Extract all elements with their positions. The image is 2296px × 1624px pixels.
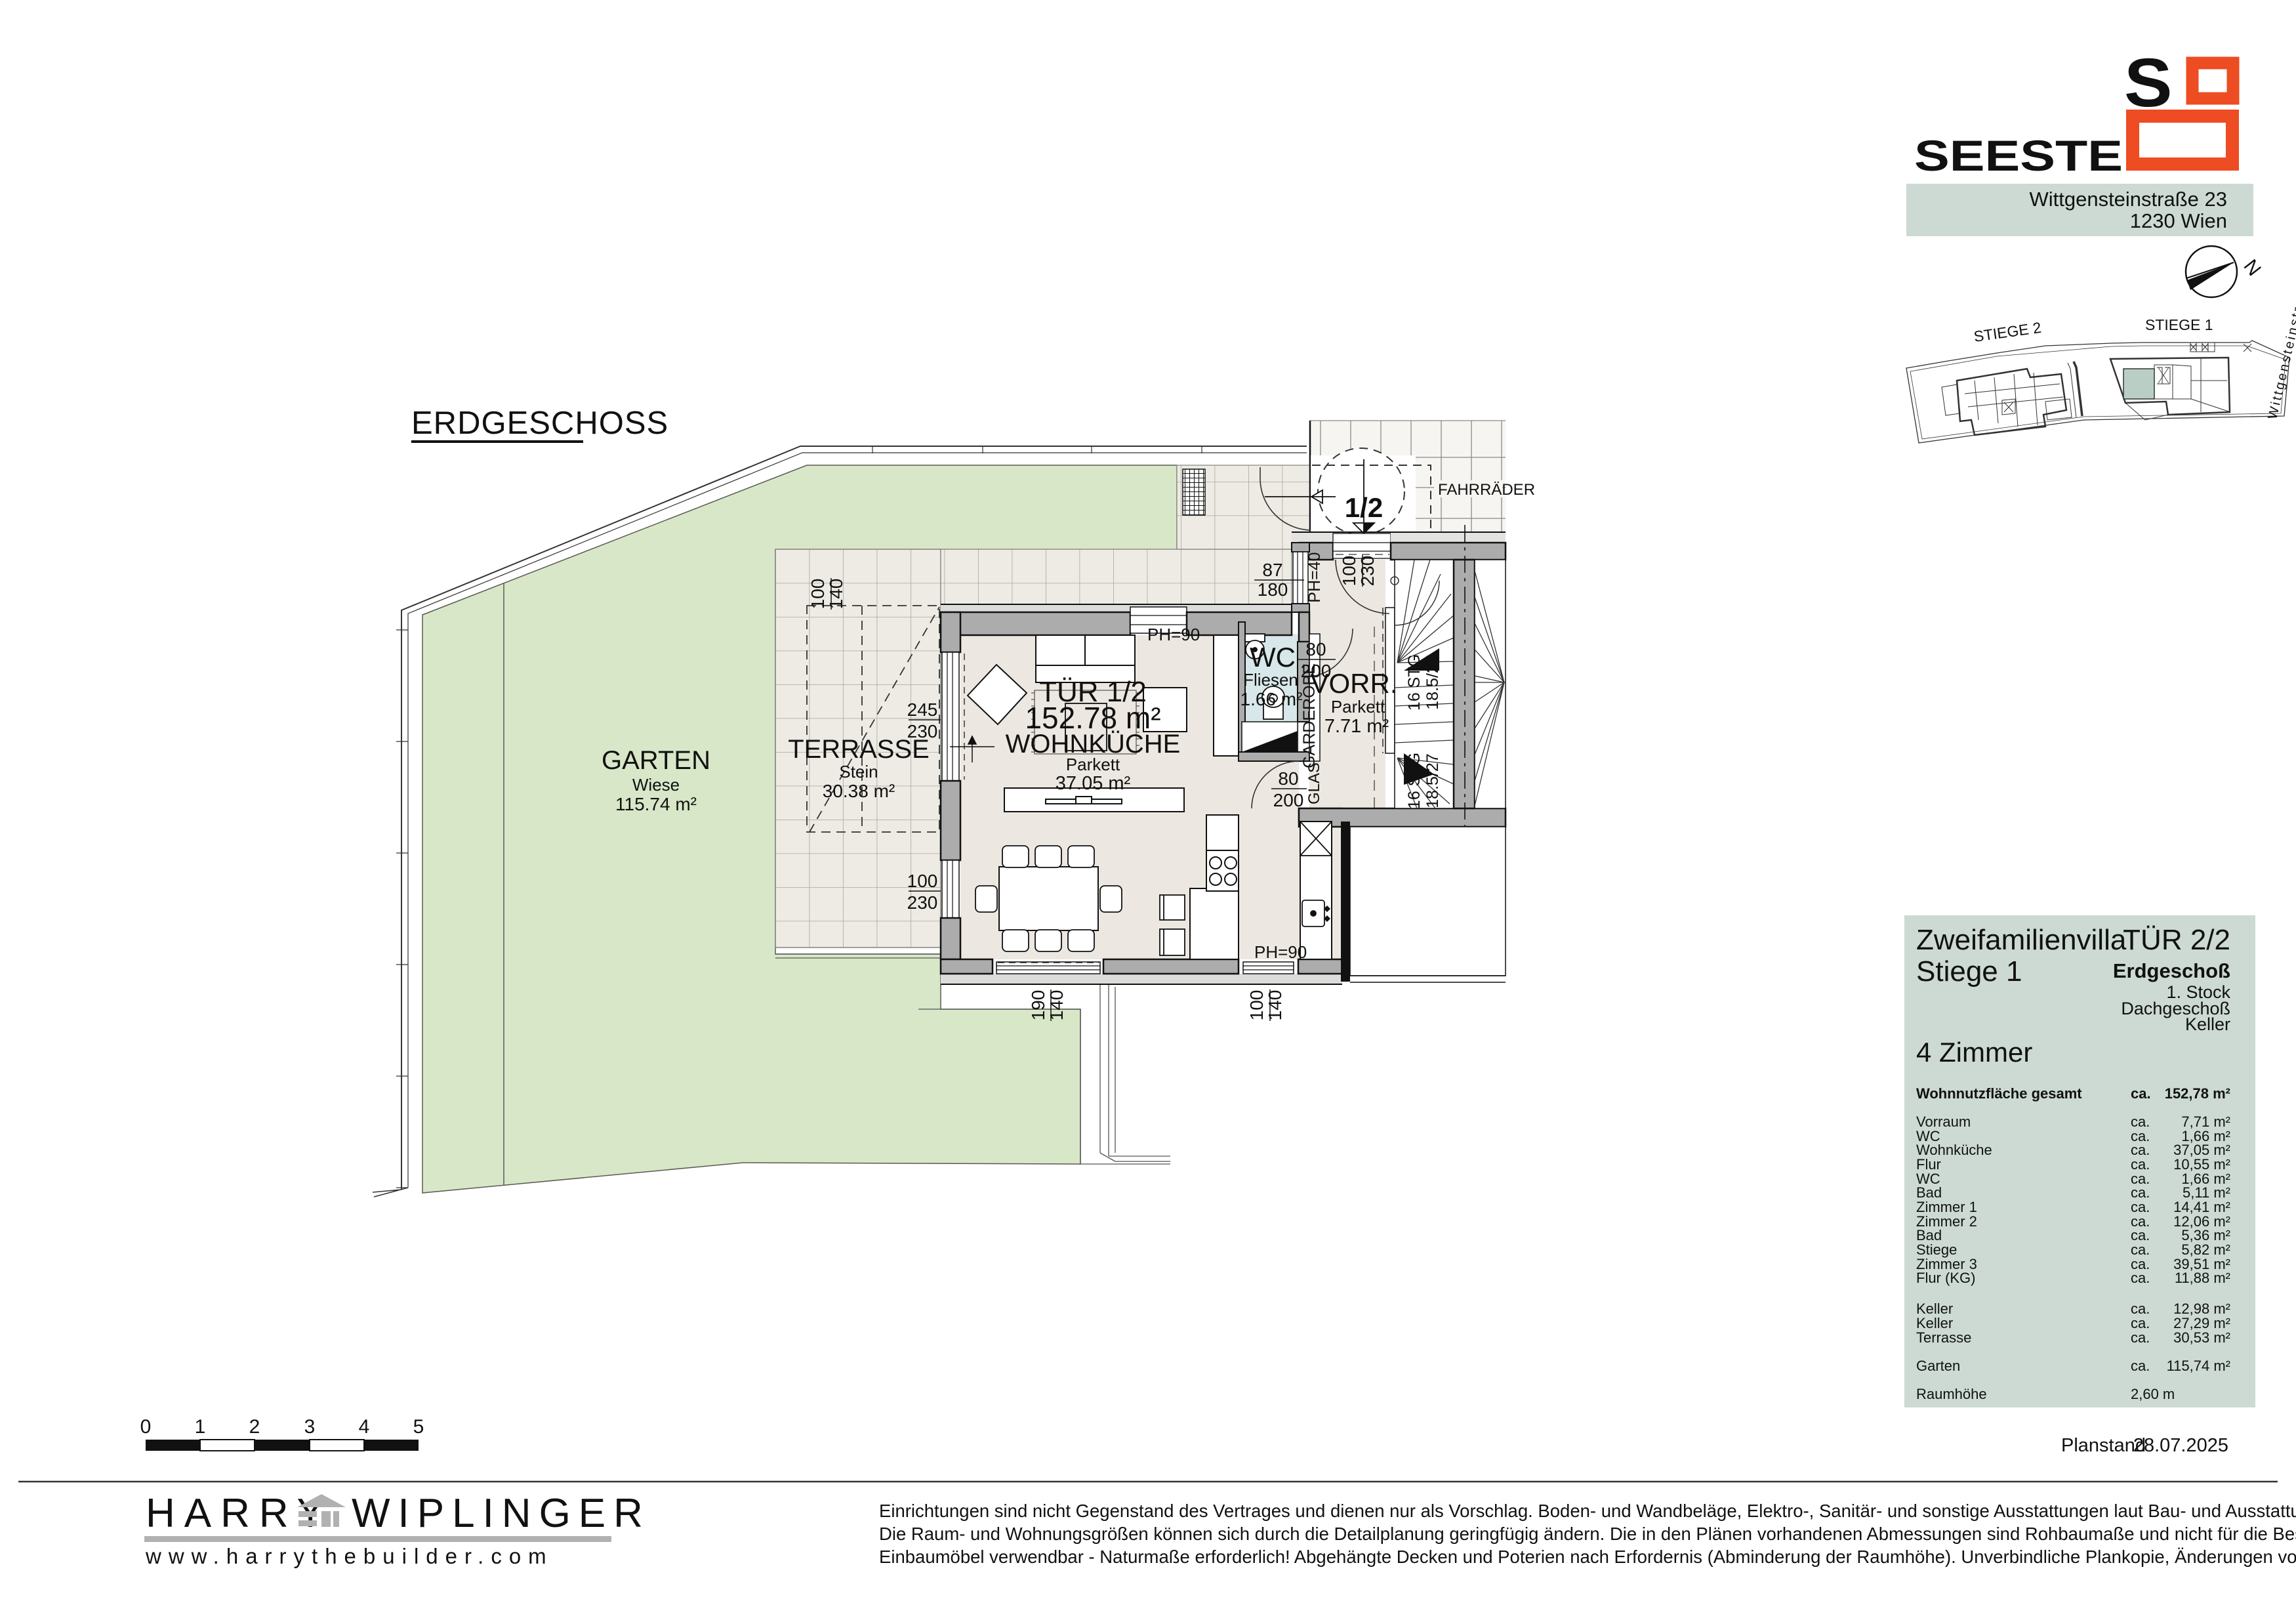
svg-text:PH=90: PH=90 xyxy=(1254,942,1307,962)
svg-text:PH=90: PH=90 xyxy=(1147,625,1200,644)
svg-text:Raumhöhe: Raumhöhe xyxy=(1916,1386,1987,1402)
svg-text:140: 140 xyxy=(1046,990,1067,1021)
svg-text:Fliesen: Fliesen xyxy=(1243,670,1298,690)
svg-text:Zweifamilienvilla: Zweifamilienvilla xyxy=(1916,924,2127,956)
svg-text:16 STG: 16 STG xyxy=(1405,753,1424,809)
svg-text:Wiese: Wiese xyxy=(632,775,680,795)
svg-text:PH=40: PH=40 xyxy=(1305,552,1324,602)
svg-text:FAHRRÄDER: FAHRRÄDER xyxy=(1438,481,1535,499)
svg-text:80: 80 xyxy=(1305,639,1326,659)
svg-text:Flur (KG): Flur (KG) xyxy=(1916,1270,1975,1286)
svg-text:0: 0 xyxy=(140,1416,152,1438)
svg-text:200: 200 xyxy=(1301,661,1332,681)
svg-text:3: 3 xyxy=(304,1416,316,1438)
svg-text:152,78 m²: 152,78 m² xyxy=(2165,1085,2230,1102)
svg-text:115.74 m²: 115.74 m² xyxy=(615,794,697,814)
svg-text:30,53 m²: 30,53 m² xyxy=(2173,1329,2230,1346)
svg-text:200: 200 xyxy=(1273,790,1304,810)
svg-text:115,74 m²: 115,74 m² xyxy=(2167,1358,2230,1374)
svg-text:230: 230 xyxy=(907,721,938,741)
svg-text:100: 100 xyxy=(1246,990,1267,1021)
svg-text:www.harrythebuilder.com: www.harrythebuilder.com xyxy=(145,1544,554,1568)
svg-text:100: 100 xyxy=(808,579,828,610)
svg-text:S: S xyxy=(2124,44,2173,121)
svg-text:Wohnnutzfläche gesamt: Wohnnutzfläche gesamt xyxy=(1916,1085,2082,1102)
svg-text:230: 230 xyxy=(1357,556,1378,587)
svg-text:140: 140 xyxy=(826,579,846,610)
svg-text:190: 190 xyxy=(1028,990,1048,1021)
svg-text:ERDGESCHOSS: ERDGESCHOSS xyxy=(411,406,668,441)
svg-text:30.38 m²: 30.38 m² xyxy=(823,781,895,801)
svg-text:18.5/27: 18.5/27 xyxy=(1424,655,1442,709)
svg-text:7.71 m²: 7.71 m² xyxy=(1324,716,1389,737)
svg-text:ca.: ca. xyxy=(2131,1329,2150,1346)
svg-text:1.66 m²: 1.66 m² xyxy=(1240,689,1303,709)
svg-text:STIEGE 1: STIEGE 1 xyxy=(2145,316,2213,333)
svg-text:1230 Wien: 1230 Wien xyxy=(2130,209,2227,232)
svg-text:Parkett: Parkett xyxy=(1331,697,1385,717)
svg-text:80: 80 xyxy=(1278,768,1298,789)
svg-text:Stein: Stein xyxy=(839,762,878,781)
svg-text:GARTEN: GARTEN xyxy=(602,746,710,775)
svg-text:18.5/27: 18.5/27 xyxy=(1424,753,1442,808)
svg-text:Einrichtungen sind nicht Gegen: Einrichtungen sind nicht Gegenstand des … xyxy=(879,1501,2296,1521)
svg-text:Terrasse: Terrasse xyxy=(1916,1329,1971,1346)
svg-text:100: 100 xyxy=(1339,556,1359,587)
svg-text:WIPLINGER: WIPLINGER xyxy=(352,1491,651,1536)
svg-text:Wittgensteinstraße 23: Wittgensteinstraße 23 xyxy=(2029,188,2227,211)
svg-text:Keller: Keller xyxy=(2185,1014,2230,1034)
svg-text:87: 87 xyxy=(1262,560,1282,580)
svg-text:4: 4 xyxy=(359,1416,370,1438)
svg-text:11,88 m²: 11,88 m² xyxy=(2175,1270,2230,1286)
svg-text:4 Zimmer: 4 Zimmer xyxy=(1916,1037,2032,1068)
svg-text:1: 1 xyxy=(195,1416,206,1438)
svg-text:TÜR 2/2: TÜR 2/2 xyxy=(2123,924,2230,956)
svg-text:ca.: ca. xyxy=(2131,1085,2151,1102)
svg-text:ca.: ca. xyxy=(2131,1270,2150,1286)
svg-text:ca.: ca. xyxy=(2131,1358,2150,1374)
svg-text:Parkett: Parkett xyxy=(1066,755,1120,774)
svg-text:28.07.2025: 28.07.2025 xyxy=(2133,1435,2228,1456)
svg-text:230: 230 xyxy=(907,892,938,913)
svg-text:WC: WC xyxy=(1250,642,1296,673)
svg-text:GLAS: GLAS xyxy=(1305,762,1323,804)
svg-text:37.05 m²: 37.05 m² xyxy=(1056,773,1131,794)
svg-text:2: 2 xyxy=(249,1416,260,1438)
svg-text:Erdgeschoß: Erdgeschoß xyxy=(2113,959,2230,982)
svg-text:2,60 m: 2,60 m xyxy=(2131,1386,2175,1402)
svg-text:245: 245 xyxy=(907,699,938,720)
svg-text:16 STG: 16 STG xyxy=(1405,654,1424,711)
svg-text:Einbaumöbel verwendbar - Natur: Einbaumöbel verwendbar - Naturmaße erfor… xyxy=(879,1547,2296,1567)
svg-text:100: 100 xyxy=(907,871,938,891)
svg-text:Garten: Garten xyxy=(1916,1358,1960,1374)
svg-text:Stiege 1: Stiege 1 xyxy=(1916,955,2022,988)
svg-text:180: 180 xyxy=(1258,579,1288,600)
svg-text:140: 140 xyxy=(1265,990,1285,1021)
svg-text:Die Raum- und Wohnungsgrößen k: Die Raum- und Wohnungsgrößen können sich… xyxy=(879,1524,2296,1544)
svg-text:SEESTE: SEESTE xyxy=(1914,131,2123,180)
svg-text:5: 5 xyxy=(413,1416,424,1438)
